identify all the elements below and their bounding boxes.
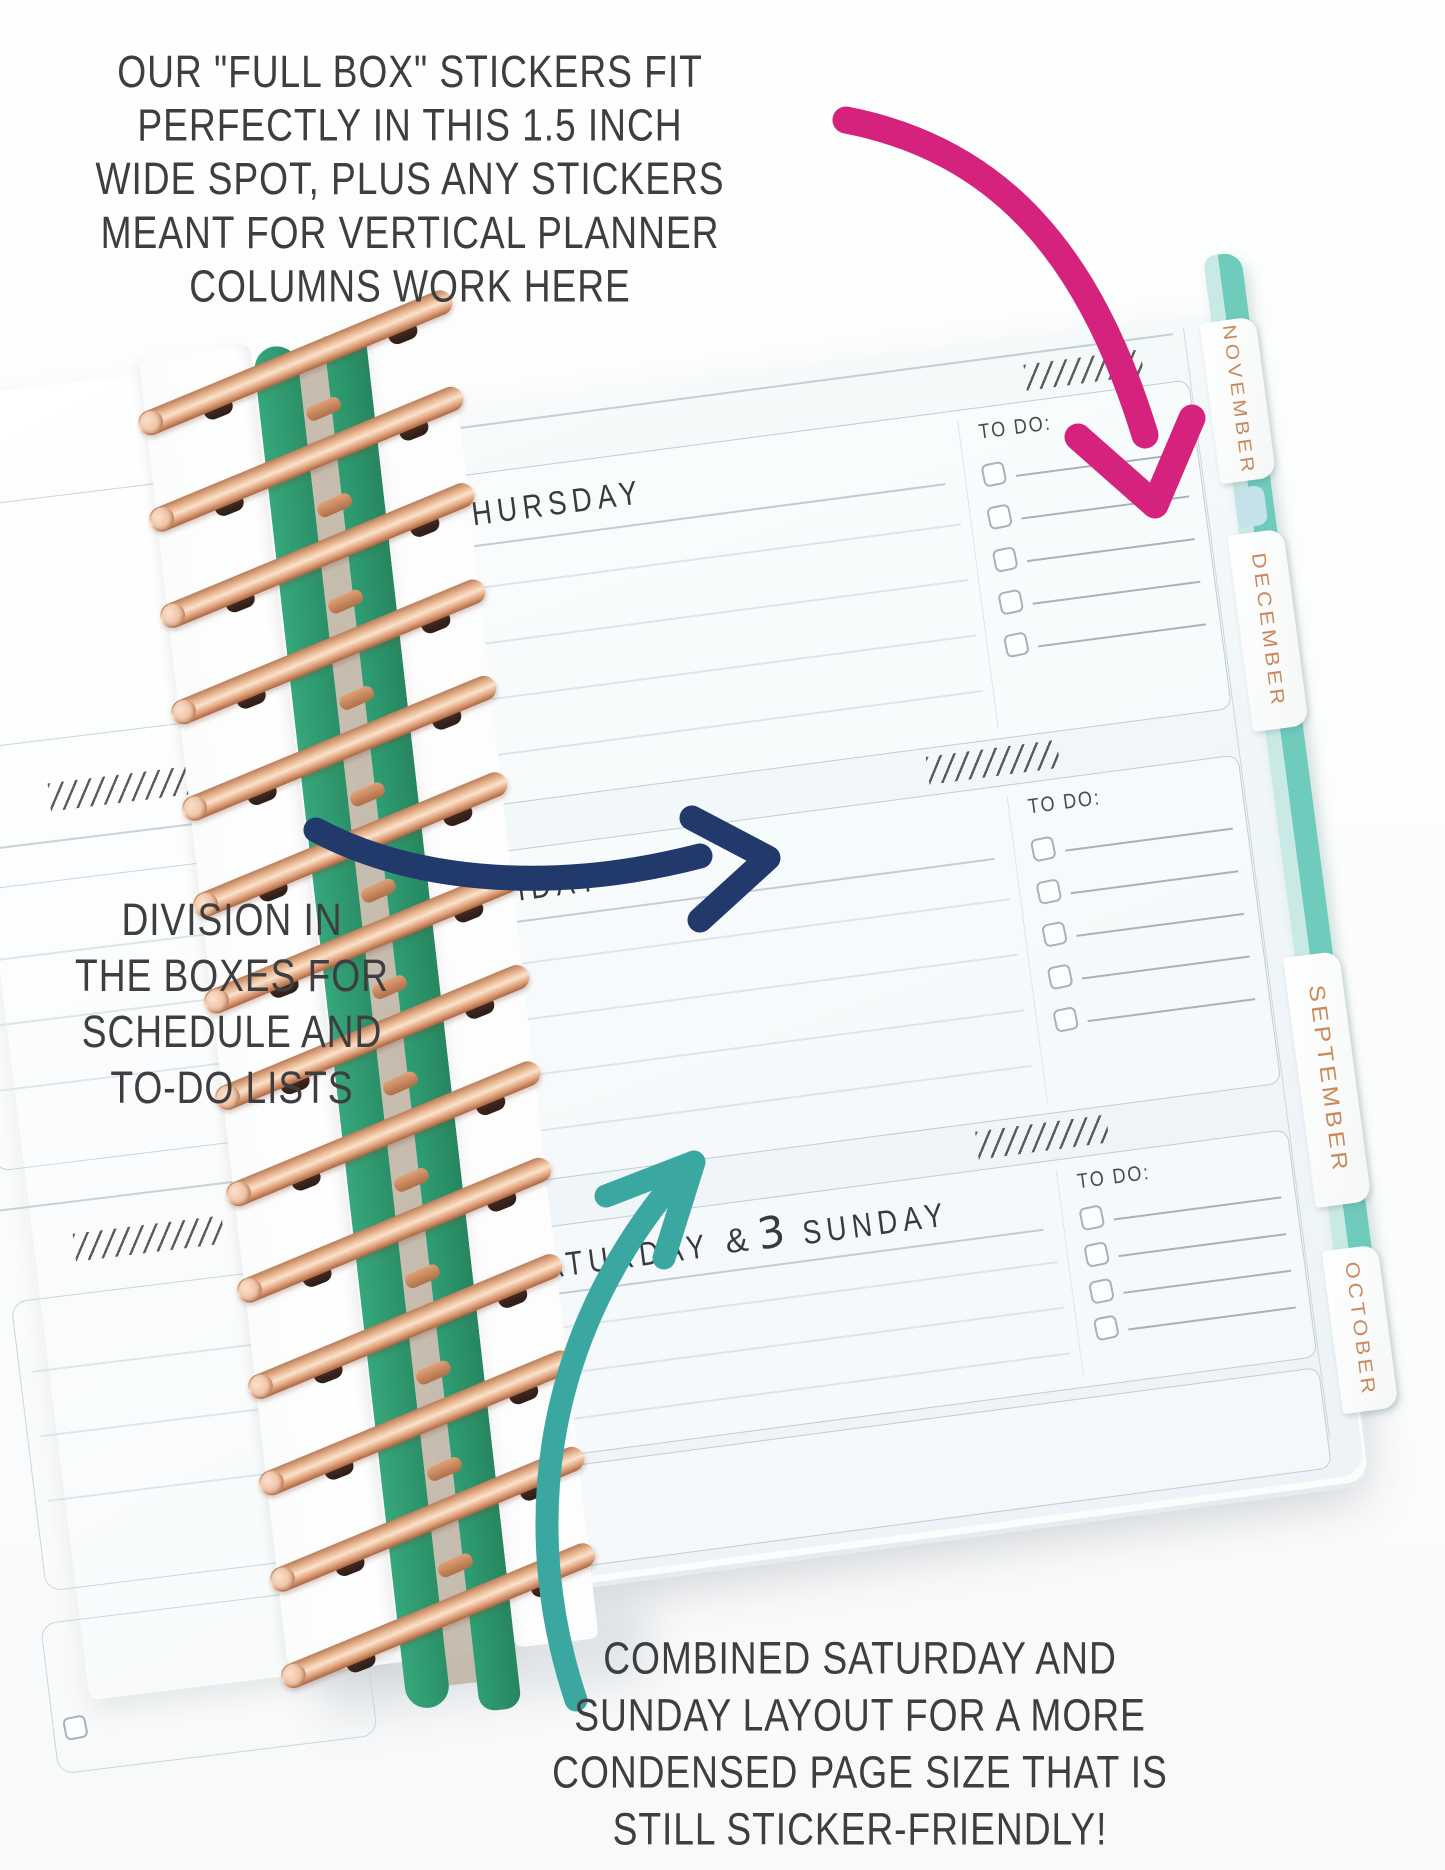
annotation-line: MEANT FOR VERTICAL PLANNER — [80, 207, 740, 261]
hatch-marks — [1023, 350, 1143, 391]
title-separator: & — [723, 1221, 751, 1263]
annotation-line: CONDENSED PAGE SIZE THAT IS — [530, 1744, 1190, 1801]
hatch-marks — [48, 765, 200, 811]
todo-checkbox — [1030, 835, 1057, 862]
annotation-line: SCHEDULE AND — [74, 1005, 390, 1061]
annotation-line: COLUMNS WORK HERE — [80, 260, 740, 314]
todo-column: TO DO: — [1025, 771, 1256, 1032]
annotation-line: SUNDAY LAYOUT FOR A MORE — [530, 1687, 1190, 1744]
annotation-top: OUR "FULL BOX" STICKERS FIT PERFECTLY IN… — [80, 46, 740, 314]
date-number: 3 — [754, 1206, 788, 1261]
todo-checkbox — [1035, 878, 1062, 905]
annotation-line: THE BOXES FOR — [74, 949, 390, 1005]
todo-checkbox — [1078, 1204, 1105, 1231]
annotation-line: WIDE SPOT, PLUS ANY STICKERS — [80, 153, 740, 207]
annotation-line: COMBINED SATURDAY AND — [530, 1630, 1190, 1687]
todo-checkbox — [1093, 1314, 1120, 1341]
annotation-left: DIVISION IN THE BOXES FOR SCHEDULE AND T… — [74, 893, 390, 1116]
todo-checkbox — [1083, 1240, 1110, 1267]
hatch-marks — [975, 1115, 1110, 1160]
month-tab-label: NOVEMBER — [1217, 323, 1258, 477]
month-tab-december: DECEMBER — [1227, 528, 1308, 732]
todo-column: TO DO: — [976, 396, 1207, 657]
todo-label: TO DO: — [1027, 787, 1103, 821]
todo-checkbox — [986, 503, 1013, 530]
planner-product-photo: NOVEMBER DECEMBER SEPTEMBER OCTOBER 31 T… — [0, 0, 1445, 1870]
month-tab-label: SEPTEMBER — [1302, 983, 1352, 1175]
todo-checkbox — [992, 545, 1019, 572]
month-tab-november: NOVEMBER — [1200, 316, 1277, 484]
todo-checkbox — [997, 588, 1024, 615]
todo-checkbox — [1047, 963, 1074, 990]
month-tab-september: SEPTEMBER — [1283, 951, 1371, 1208]
month-tab-label: DECEMBER — [1247, 551, 1290, 709]
month-tab-october: OCTOBER — [1322, 1244, 1399, 1414]
todo-checkbox — [1003, 631, 1030, 658]
todo-label: TO DO: — [1076, 1161, 1152, 1195]
tab-gap-notch — [1233, 485, 1268, 529]
month-tab-label: OCTOBER — [1340, 1260, 1380, 1398]
annotation-line: DIVISION IN — [74, 893, 390, 949]
annotation-line: STILL STICKER-FRIENDLY! — [530, 1801, 1190, 1858]
todo-checkbox — [1088, 1277, 1115, 1304]
hatch-marks — [926, 740, 1061, 785]
annotation-line: TO-DO LISTS — [74, 1061, 390, 1117]
todo-checkbox — [1052, 1005, 1079, 1032]
todo-checkbox — [1041, 920, 1068, 947]
annotation-line: PERFECTLY IN THIS 1.5 INCH — [80, 100, 740, 154]
todo-label: TO DO: — [977, 412, 1053, 446]
todo-checkbox — [980, 460, 1007, 487]
annotation-line: OUR "FULL BOX" STICKERS FIT — [80, 46, 740, 100]
todo-checkbox — [62, 1714, 89, 1741]
annotation-bottom: COMBINED SATURDAY AND SUNDAY LAYOUT FOR … — [530, 1630, 1190, 1858]
hatch-marks — [73, 1216, 225, 1262]
todo-column: TO DO: — [1074, 1146, 1296, 1341]
